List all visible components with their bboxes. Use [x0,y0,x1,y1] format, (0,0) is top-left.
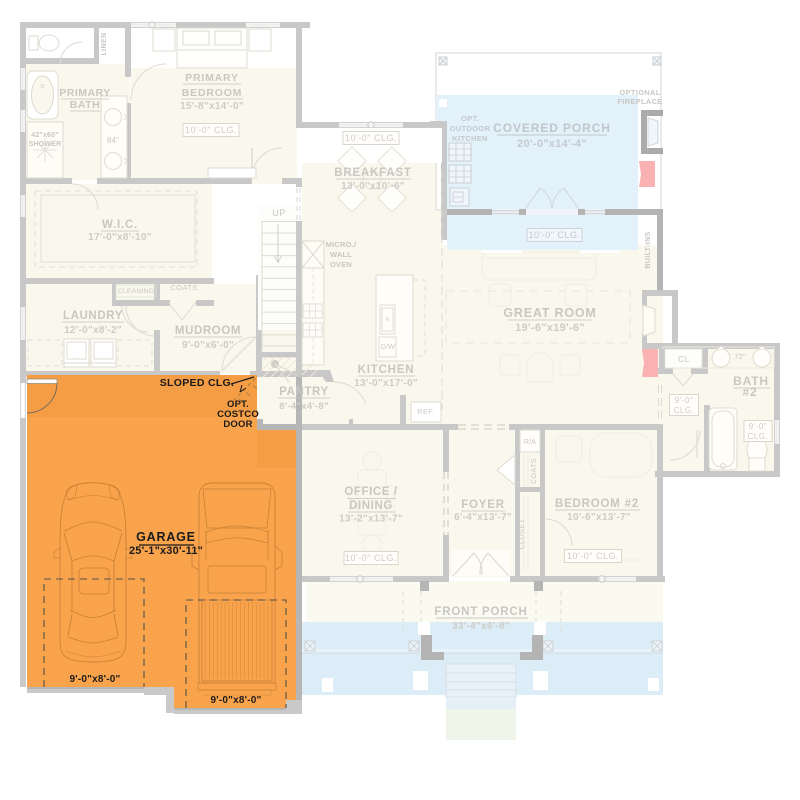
svg-text:REF.: REF. [417,407,434,416]
svg-text:10'-6"x13'-7": 10'-6"x13'-7" [567,512,631,523]
svg-text:COATS: COATS [170,283,197,292]
svg-text:FRONT PORCH: FRONT PORCH [434,606,527,618]
svg-text:MICRO./: MICRO./ [326,240,357,249]
svg-text:CLG.: CLG. [748,432,769,441]
svg-text:25'-1"x30'-11": 25'-1"x30'-11" [129,545,203,557]
svg-text:BREAKFAST: BREAKFAST [334,167,411,179]
svg-text:COATS: COATS [531,458,538,484]
svg-text:OUTDOOR: OUTDOOR [450,124,491,133]
svg-text:10'-0" CLG.: 10'-0" CLG. [567,551,619,561]
svg-text:10'-0" CLG.: 10'-0" CLG. [529,230,581,240]
svg-text:9'-0": 9'-0" [675,396,693,405]
svg-text:OPTIONAL: OPTIONAL [619,88,660,97]
svg-text:9'-0"x6'-0": 9'-0"x6'-0" [182,340,234,351]
svg-text:WALL: WALL [330,250,352,259]
svg-text:10'-0" CLG.: 10'-0" CLG. [345,553,397,563]
svg-text:15'-8"x14'-0": 15'-8"x14'-0" [180,101,244,112]
svg-text:DINING: DINING [349,500,393,512]
svg-text:BEDROOM #2: BEDROOM #2 [555,498,639,510]
svg-text:MUDROOM: MUDROOM [175,325,241,337]
svg-text:BEDROOM: BEDROOM [182,87,242,99]
svg-text:OPT.: OPT. [461,114,479,123]
svg-text:GARAGE: GARAGE [136,530,196,544]
svg-text:R/A: R/A [524,439,536,446]
svg-text:17'-0"x8'-10": 17'-0"x8'-10" [88,232,152,243]
svg-text:20'-0"x14'-4": 20'-0"x14'-4" [517,138,587,150]
svg-text:KITCHEN: KITCHEN [358,364,415,376]
svg-text:PRIMARY: PRIMARY [59,87,111,99]
svg-text:CLG.: CLG. [674,406,695,415]
svg-text:FIREPLACE: FIREPLACE [617,97,662,106]
svg-text:9'-0"x8'-0": 9'-0"x8'-0" [70,674,121,685]
svg-text:COVERED PORCH: COVERED PORCH [493,121,611,135]
svg-text:9'-0": 9'-0" [749,422,767,431]
svg-text:UP: UP [272,208,286,218]
svg-text:SHOWER: SHOWER [29,141,62,148]
svg-text:6'-4"x13'-7": 6'-4"x13'-7" [454,512,512,523]
svg-text:LAUNDRY: LAUNDRY [63,310,123,322]
svg-text:13'-0"x10'-6": 13'-0"x10'-6" [341,181,405,192]
svg-text:KITCHEN: KITCHEN [452,134,487,143]
svg-text:PANTRY: PANTRY [279,386,329,398]
svg-text:13'-2"x13'-7": 13'-2"x13'-7" [339,514,403,525]
svg-text:19'-6"x19'-6": 19'-6"x19'-6" [515,322,585,334]
svg-text:72": 72" [734,352,746,361]
svg-text:8'-4"x4'-8": 8'-4"x4'-8" [279,401,329,412]
svg-text:BATH: BATH [70,99,100,111]
svg-text:#2: #2 [743,385,758,399]
svg-text:PRIMARY: PRIMARY [185,72,239,84]
svg-text:12'-0"x8'-2": 12'-0"x8'-2" [64,325,122,336]
svg-text:10'-0" CLG.: 10'-0" CLG. [185,125,237,135]
svg-text:OFFICE /: OFFICE / [344,486,398,498]
svg-text:OVEN: OVEN [330,260,352,269]
svg-text:CLEANING: CLEANING [118,288,154,295]
svg-text:SLOPED CLG.: SLOPED CLG. [160,377,234,389]
svg-text:42"x60": 42"x60" [31,132,59,139]
svg-text:9'-0"x8'-0": 9'-0"x8'-0" [211,695,262,706]
svg-text:BUILT-INS: BUILT-INS [645,231,652,268]
svg-text:FOYER: FOYER [461,499,505,511]
svg-text:13'-0"x17'-0": 13'-0"x17'-0" [354,378,418,389]
svg-text:33'-4"x6'-8": 33'-4"x6'-8" [452,621,510,632]
svg-text:CL: CL [678,354,690,364]
svg-text:84": 84" [107,136,119,145]
svg-text:LINEN: LINEN [101,33,108,56]
svg-text:CLOSET: CLOSET [519,518,526,549]
svg-text:10'-0" CLG.: 10'-0" CLG. [345,133,397,143]
svg-text:D/W: D/W [381,344,395,351]
svg-text:DOOR: DOOR [223,419,252,430]
svg-text:GREAT ROOM: GREAT ROOM [503,306,596,320]
svg-text:W.I.C.: W.I.C. [102,219,138,231]
